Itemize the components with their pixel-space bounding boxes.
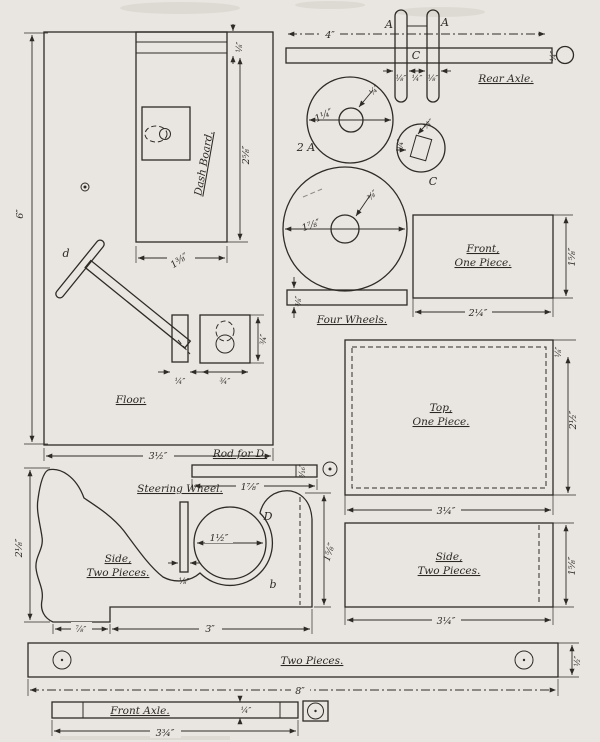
side-profile-bottom-dim: 3″ <box>205 624 215 635</box>
runner-label: Two Pieces. <box>281 655 344 667</box>
runner-drawing: Two Pieces. ½″ 8″ <box>28 643 582 697</box>
side-profile-label-1: Side, <box>105 553 132 565</box>
gap-dim: ¼″ <box>412 74 423 83</box>
front-axle-label: Front Axle. <box>109 705 169 717</box>
floor-outline <box>44 32 273 445</box>
front-piece-height-dim: 1⅝″ <box>567 247 578 266</box>
slot-block-outline <box>200 315 250 363</box>
side-piece-label-1: Side, <box>436 551 463 563</box>
steering-wheel-diameter-dim: 1½″ <box>210 533 229 544</box>
axle-disc-right <box>427 10 439 102</box>
top-piece-label-2: One Piece. <box>413 416 470 428</box>
post-outline <box>172 315 188 362</box>
steering-wheel-thickness-dim: ⅛″ <box>179 577 190 586</box>
axle-end-dim: ¼″ <box>549 51 558 62</box>
rod-thickness-dim: ³⁄₁₆″ <box>298 464 307 478</box>
side-piece-width-dim: 3¼″ <box>437 616 456 627</box>
slot-width-dim: ¾″ <box>220 377 231 386</box>
top-piece-margin-dim: ⅛″ <box>554 347 563 358</box>
hub-c-label: C <box>412 49 421 62</box>
c-wheel-label: C <box>429 175 438 188</box>
rear-axle-label: Rear Axle. <box>477 73 533 85</box>
top-piece-label-1: Top, <box>430 402 453 414</box>
slot-height-dim: ¾″ <box>259 334 268 345</box>
c-wheel-square-hole <box>410 135 431 161</box>
rod-drawing: Rod for D. ³⁄₁₆″ 1⅞″ <box>192 448 337 493</box>
front-piece-label-2: One Piece. <box>455 257 512 269</box>
plans-drawing: 6″ ⅛″ Dash Board. 2⅝″ 1⅜″ d <box>0 0 600 742</box>
runner-height-dim: ½″ <box>573 656 582 667</box>
c-wheel-top-dim: ¼″ <box>421 117 435 131</box>
floor-label: Floor. <box>115 394 147 406</box>
rod-label: Rod for D. <box>212 448 267 460</box>
steering-wheel-label: Steering Wheel. <box>137 483 223 495</box>
dashboard-label: Dash Board. <box>192 130 215 198</box>
steering-wheel-edge-view <box>180 502 188 572</box>
floor-width-dim: 3½″ <box>149 451 168 462</box>
wheel-strip-dim: ⅜″ <box>294 296 303 307</box>
dashboard-strip-dim: ⅛″ <box>235 42 244 53</box>
scanned-plan-page: 6″ ⅛″ Dash Board. 2⅝″ 1⅜″ d <box>0 0 600 742</box>
side-profile-label-2: Two Pieces. <box>87 567 150 579</box>
side-piece-drawing: Side, Two Pieces. 1⅝″ 3¼″ <box>345 523 578 627</box>
steering-wheel-drawing: Steering Wheel. ⅛″ 1½″ D <box>137 483 272 586</box>
front-axle-bar <box>52 702 298 718</box>
top-piece-height-dim: 2½″ <box>568 410 579 430</box>
front-piece-width-dim: 2¼″ <box>468 308 488 319</box>
front-axle-notch-dim: ¼″ <box>241 706 252 715</box>
wheel-strip-outline <box>287 290 407 305</box>
small-wheel-diameter-dim: 1¼″ <box>313 107 335 125</box>
part-d-label: d <box>62 247 69 260</box>
floor-height-dim: 6″ <box>15 209 26 219</box>
floor-plan: 6″ ⅛″ Dash Board. 2⅝″ 1⅜″ d <box>15 24 273 462</box>
four-wheels-label: Four Wheels. <box>316 314 387 326</box>
disc-right-label: A <box>440 16 449 29</box>
c-wheel-side-dim: ¼″ <box>396 139 405 150</box>
runner-length-dim: 8″ <box>295 686 305 697</box>
side-piece-label-2: Two Pieces. <box>418 565 481 577</box>
side-profile-height-dim: 2⅛″ <box>14 538 25 558</box>
point-b-label: b <box>269 578 276 591</box>
dashboard-height-dim: 2⅝″ <box>241 145 252 165</box>
axle-disc-left <box>395 10 407 102</box>
top-piece-drawing: Top, One Piece. ⅛″ 2½″ 3¼″ <box>345 340 579 517</box>
wheel-d-label: D <box>263 510 273 523</box>
front-axle-drawing: Front Axle. ¼″ 3¾″ <box>52 697 328 739</box>
side-profile-front-dim: ⅞″ <box>76 625 87 634</box>
post-width-dim: ¼″ <box>175 377 186 386</box>
rear-axle-drawing: 4″ A A C ⅛″ ¼″ ⅛″ ¼″ Rear Axle. <box>286 10 574 102</box>
large-wheel-diameter-dim: 1⅞″ <box>300 217 322 234</box>
disc-left-label: A <box>384 18 393 31</box>
top-piece-width-dim: 3¼″ <box>437 506 456 517</box>
side-piece-height-dim: 1⅝″ <box>567 556 578 575</box>
disc-right-dim: ⅛″ <box>428 74 439 83</box>
disc-left-dim: ⅛″ <box>396 74 407 83</box>
seat-plate-outline <box>142 107 190 160</box>
rear-axle-length-dim: 4″ <box>324 30 335 41</box>
rod-length-dim: 1⅞″ <box>241 482 260 493</box>
front-piece-drawing: Front, One Piece. 1⅝″ 2¼″ <box>413 215 578 319</box>
small-wheel-label: 2 A <box>296 141 315 154</box>
axle-knob <box>557 47 574 64</box>
wheels-drawing: 1¼″ ¼″ 2 A ¼″ ¼″ C 1⅞″ ⅜″ ⅜″ Four Wheels… <box>283 77 445 326</box>
front-axle-length-dim: 3¾″ <box>156 728 175 739</box>
front-piece-label-1: Front, <box>466 243 500 255</box>
